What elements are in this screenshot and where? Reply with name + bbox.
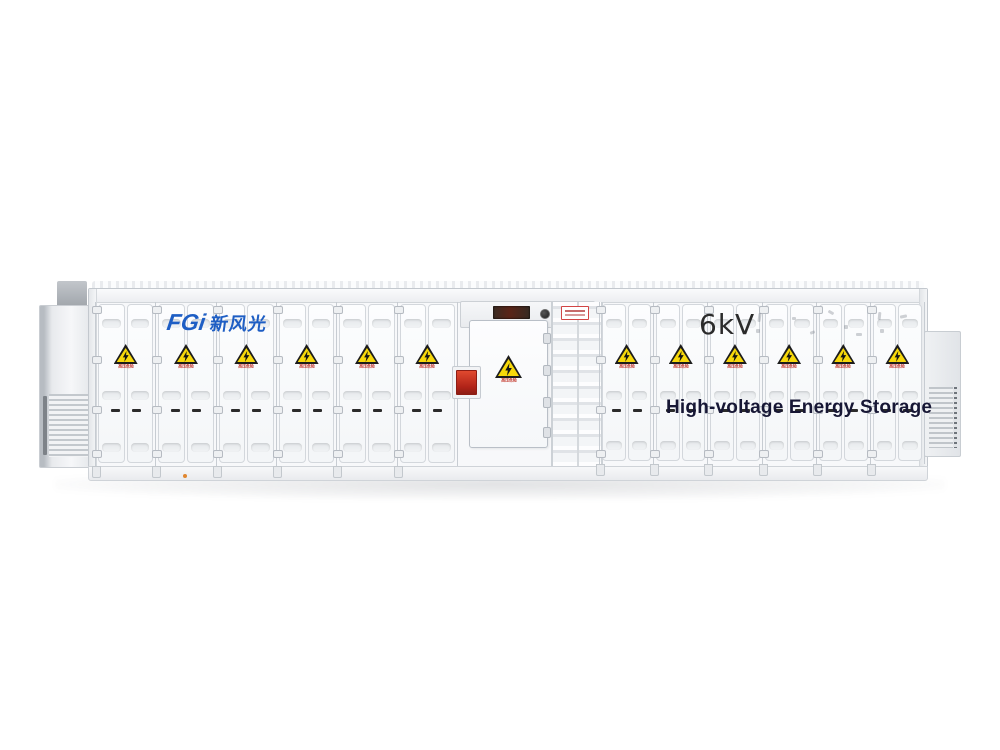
door-hinge xyxy=(650,356,660,364)
battery-door-module: 高压危险 xyxy=(336,302,396,466)
door-hinge xyxy=(273,306,283,314)
door-recess-slot xyxy=(432,319,451,328)
door-hinge xyxy=(273,356,283,364)
high-voltage-warning-sign: 高压危险 xyxy=(667,344,695,371)
high-voltage-warning-sign: 高压危险 xyxy=(413,344,441,371)
door-recess-slot xyxy=(312,391,331,400)
door-recess-slot xyxy=(432,443,451,452)
door-recess-slot xyxy=(404,443,423,452)
warning-triangle-icon xyxy=(495,355,522,378)
round-button xyxy=(540,309,550,319)
warning-triangle-icon xyxy=(114,344,138,364)
door-hinge xyxy=(596,450,606,458)
warning-triangle-icon xyxy=(669,344,693,364)
door-latch xyxy=(373,409,382,412)
door-hinge xyxy=(650,450,660,458)
door-hinge xyxy=(273,450,283,458)
tray-warning-label xyxy=(561,306,589,320)
door-recess-slot xyxy=(404,391,423,400)
module-foot-tab xyxy=(759,464,768,476)
door-hinge xyxy=(543,397,551,408)
door-recess-slot xyxy=(223,443,242,452)
door-hinge xyxy=(152,306,162,314)
high-voltage-warning-sign: 高压危险 xyxy=(353,344,381,371)
hvac-top-cap xyxy=(57,281,87,308)
logo-latin-text: FGi xyxy=(165,309,207,336)
warning-triangle-icon xyxy=(723,344,747,364)
hazard-caption: 高压危险 xyxy=(834,365,852,369)
door-latch xyxy=(633,409,642,412)
hazard-caption: 高压危险 xyxy=(499,379,517,383)
door-recess-slot xyxy=(191,391,210,400)
door-recess-slot xyxy=(191,443,210,452)
door-latch xyxy=(352,409,361,412)
door-hinge xyxy=(394,450,404,458)
door-recess-slot xyxy=(283,319,302,328)
door-recess-slot xyxy=(283,443,302,452)
warning-triangle-icon xyxy=(615,344,639,364)
door-hinge xyxy=(650,306,660,314)
door-latch xyxy=(412,409,421,412)
hazard-caption: 高压危险 xyxy=(418,365,436,369)
door-recess-slot xyxy=(312,319,331,328)
door-hinge xyxy=(92,450,102,458)
fire-alarm-panel xyxy=(456,370,477,395)
door-hinge xyxy=(92,356,102,364)
door-latch xyxy=(111,409,120,412)
door-recess-slot xyxy=(632,441,648,450)
door-hinge xyxy=(704,356,714,364)
warning-triangle-icon xyxy=(234,344,258,364)
door-recess-slot xyxy=(312,443,331,452)
hazard-caption: 高压危险 xyxy=(117,365,135,369)
door-hinge xyxy=(759,450,769,458)
door-hinge xyxy=(596,356,606,364)
door-recess-slot xyxy=(162,443,181,452)
door-hinge xyxy=(813,356,823,364)
brand-logo: FGi 新风光 xyxy=(165,309,269,336)
door-hinge xyxy=(152,356,162,364)
module-foot-tab xyxy=(867,464,876,476)
door-hinge xyxy=(213,356,223,364)
door-hinge xyxy=(394,406,404,414)
door-recess-slot xyxy=(343,319,362,328)
door-recess-slot xyxy=(343,391,362,400)
hazard-caption: 高压危险 xyxy=(726,365,744,369)
door-leaf-left xyxy=(279,304,306,463)
battery-door-module: 高压危险 xyxy=(95,302,155,466)
door-recess-slot xyxy=(686,441,702,450)
door-hinge xyxy=(92,406,102,414)
door-latch xyxy=(292,409,301,412)
door-hinge xyxy=(759,356,769,364)
door-hinge xyxy=(394,356,404,364)
door-leaf-right xyxy=(368,304,395,463)
battery-door-module: 高压危险 xyxy=(599,302,653,464)
module-foot-tab xyxy=(333,466,342,478)
door-recess-slot xyxy=(372,391,391,400)
door-recess-slot xyxy=(432,391,451,400)
high-voltage-warning-sign: 高压危险 xyxy=(613,344,641,371)
door-recess-slot xyxy=(606,441,622,450)
warning-triangle-icon xyxy=(355,344,379,364)
door-latch xyxy=(192,409,201,412)
door-hinge xyxy=(152,406,162,414)
led-display xyxy=(493,306,530,319)
high-voltage-warning-sign: 高压危险 xyxy=(232,344,260,371)
door-hinge xyxy=(333,306,343,314)
door-recess-slot xyxy=(372,319,391,328)
hvac-louvers xyxy=(49,394,88,457)
door-latch xyxy=(612,409,621,412)
door-latch xyxy=(252,409,261,412)
hazard-caption: 高压危险 xyxy=(237,365,255,369)
high-voltage-warning-sign: 高压危险 xyxy=(495,355,523,385)
door-hinge xyxy=(213,450,223,458)
door-hinge xyxy=(92,306,102,314)
door-hinge xyxy=(152,450,162,458)
door-hinge xyxy=(333,356,343,364)
product-photo-stage: 高压危险 xyxy=(0,0,1000,750)
right-vent-unit xyxy=(924,331,961,457)
door-recess-slot xyxy=(714,441,730,450)
logo-cjk-text: 新风光 xyxy=(208,310,269,336)
door-recess-slot xyxy=(823,441,839,450)
door-recess-slot xyxy=(877,441,893,450)
door-latch xyxy=(433,409,442,412)
module-foot-tab xyxy=(813,464,822,476)
door-leaf-left xyxy=(656,304,680,461)
door-recess-slot xyxy=(660,319,676,328)
hazard-caption: 高压危险 xyxy=(358,365,376,369)
high-voltage-warning-sign: 高压危险 xyxy=(293,344,321,371)
door-leaf-left xyxy=(98,304,125,463)
door-recess-slot xyxy=(283,391,302,400)
module-foot-tab xyxy=(273,466,282,478)
door-recess-slot xyxy=(606,319,622,328)
door-leaf-left xyxy=(339,304,366,463)
battery-door-module: 高压危险 xyxy=(276,302,336,466)
door-latch xyxy=(231,409,240,412)
door-hinge xyxy=(650,406,660,414)
warning-triangle-icon xyxy=(415,344,439,364)
module-foot-tab xyxy=(596,464,605,476)
door-hinge xyxy=(867,356,877,364)
door-recess-slot xyxy=(404,319,423,328)
door-hinge xyxy=(543,427,551,438)
door-recess-slot xyxy=(632,319,648,328)
fire-alarm-box xyxy=(452,366,481,399)
door-recess-slot xyxy=(131,319,150,328)
module-foot-tab xyxy=(394,466,403,478)
module-foot-tab xyxy=(92,466,101,478)
door-recess-slot xyxy=(632,391,648,400)
door-leaf-left xyxy=(602,304,626,461)
door-leaf-left xyxy=(400,304,427,463)
door-recess-slot xyxy=(102,391,121,400)
door-hinge xyxy=(543,365,551,376)
door-hinge xyxy=(273,406,283,414)
door-hinge xyxy=(867,450,877,458)
voltage-label: 6kV xyxy=(699,308,755,341)
high-voltage-warning-sign: 高压危险 xyxy=(112,344,140,371)
door-hinge xyxy=(813,450,823,458)
module-foot-tab xyxy=(650,464,659,476)
hazard-caption: 高压危险 xyxy=(780,365,798,369)
door-recess-slot xyxy=(343,443,362,452)
high-voltage-warning-sign: 高压危险 xyxy=(172,344,200,371)
orange-marker xyxy=(183,474,187,478)
door-hinge xyxy=(543,333,551,344)
door-hinge xyxy=(704,450,714,458)
door-recess-slot xyxy=(131,391,150,400)
door-recess-slot xyxy=(794,441,810,450)
left-door-section: 高压危险 xyxy=(95,302,458,466)
door-hinge xyxy=(394,306,404,314)
door-leaf-right xyxy=(628,304,652,461)
door-latch xyxy=(313,409,322,412)
door-latch xyxy=(171,409,180,412)
door-recess-slot xyxy=(769,441,785,450)
hazard-caption: 高压危险 xyxy=(177,365,195,369)
door-recess-slot xyxy=(102,443,121,452)
erased-text-remnants xyxy=(752,305,912,350)
module-foot-tab xyxy=(213,466,222,478)
door-hinge xyxy=(333,450,343,458)
door-leaf-right xyxy=(308,304,335,463)
door-recess-slot xyxy=(902,441,918,450)
door-recess-slot xyxy=(223,391,242,400)
door-recess-slot xyxy=(131,443,150,452)
hazard-caption: 高压危险 xyxy=(298,365,316,369)
door-recess-slot xyxy=(660,441,676,450)
vent-louvers xyxy=(929,387,953,448)
warning-triangle-icon xyxy=(295,344,319,364)
door-latch xyxy=(132,409,141,412)
door-recess-slot xyxy=(251,443,270,452)
module-foot-tab xyxy=(704,464,713,476)
battery-door-module: 高压危险 xyxy=(397,302,458,466)
high-voltage-warning-sign: 高压危险 xyxy=(721,344,749,371)
door-recess-slot xyxy=(848,441,864,450)
vent-trim xyxy=(954,387,957,448)
door-recess-slot xyxy=(102,319,121,328)
door-hinge xyxy=(596,406,606,414)
door-hinge xyxy=(213,406,223,414)
door-recess-slot xyxy=(162,391,181,400)
door-hinge xyxy=(333,406,343,414)
hazard-caption: 高压危险 xyxy=(672,365,690,369)
warning-triangle-icon xyxy=(174,344,198,364)
door-recess-slot xyxy=(740,441,756,450)
door-hinge xyxy=(596,306,606,314)
door-leaf-right xyxy=(127,304,154,463)
cable-tray-rail xyxy=(577,302,579,466)
door-recess-slot xyxy=(251,391,270,400)
hvac-end-unit xyxy=(39,305,93,468)
product-title: High-voltage Energy Storage xyxy=(666,397,932,419)
door-recess-slot xyxy=(606,391,622,400)
module-foot-tab xyxy=(152,466,161,478)
hvac-side-trim xyxy=(43,396,47,455)
door-recess-slot xyxy=(372,443,391,452)
hazard-caption: 高压危险 xyxy=(888,365,906,369)
hazard-caption: 高压危险 xyxy=(617,365,635,369)
cable-tray xyxy=(551,302,603,466)
door-leaf-right xyxy=(428,304,455,463)
